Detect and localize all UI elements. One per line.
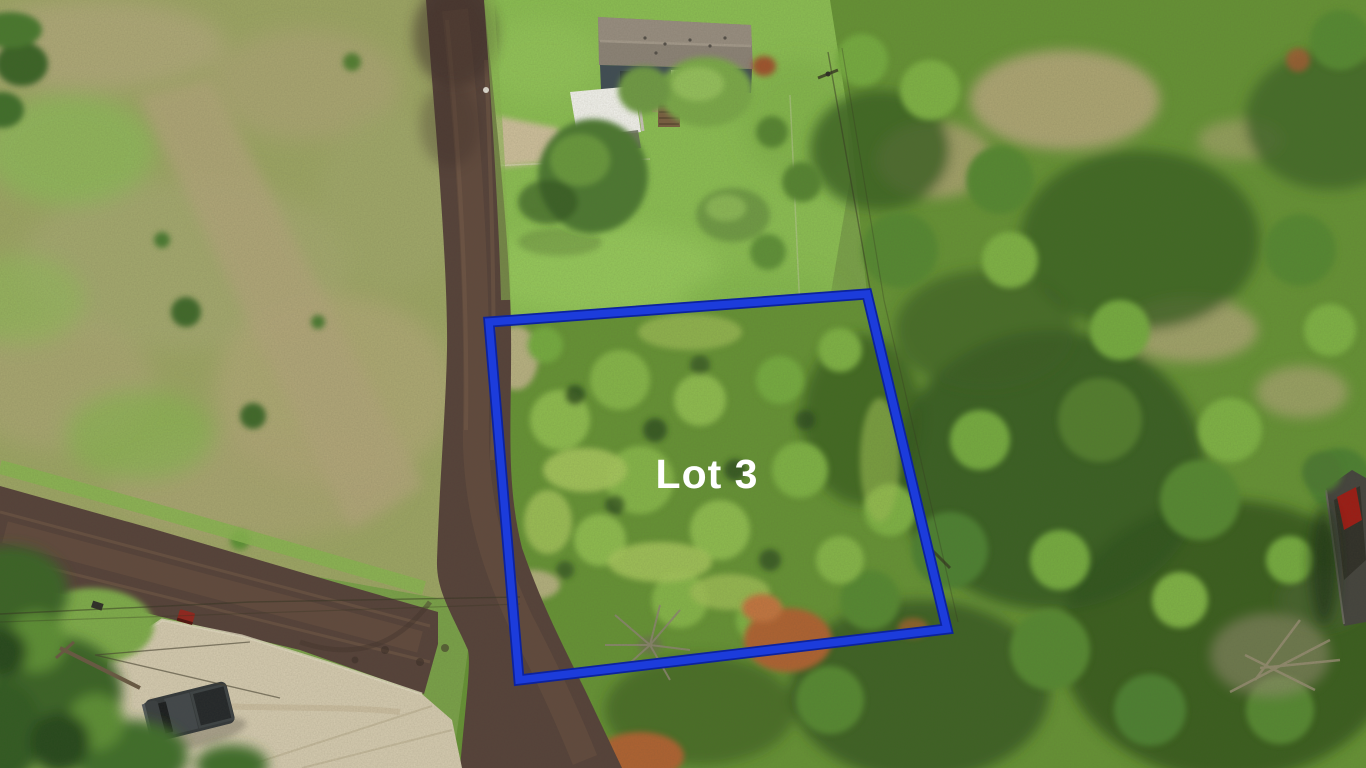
lot-label: Lot 3	[656, 451, 759, 497]
aerial-photo-canvas: Lot 3	[0, 0, 1366, 768]
aerial-photo: Lot 3	[0, 0, 1366, 768]
photo-grain	[0, 0, 1366, 768]
